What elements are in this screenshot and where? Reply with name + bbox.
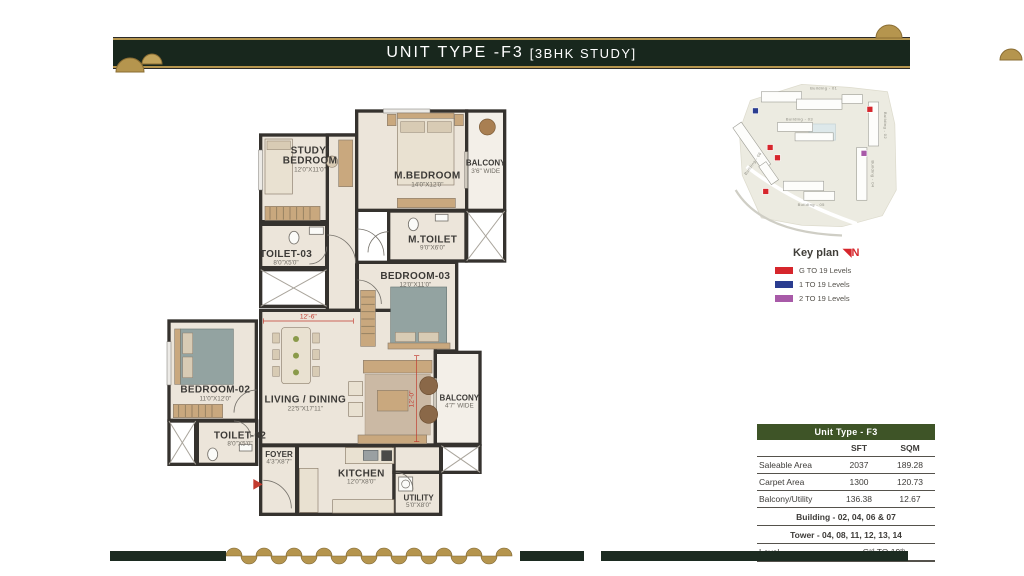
- unit-marker-red: [763, 189, 769, 195]
- page-title: UNIT TYPE -F3: [386, 44, 523, 62]
- room-label-bedroom-03: BEDROOM-03: [380, 271, 450, 282]
- wc: [208, 448, 218, 461]
- armchair: [420, 377, 438, 395]
- armchair: [420, 405, 438, 423]
- building-label: Building - 03: [786, 116, 813, 121]
- chair: [313, 350, 320, 360]
- side-table: [387, 114, 396, 125]
- row-label: Carpet Area: [757, 477, 833, 487]
- study-desk: [339, 140, 353, 187]
- floor-plan: 12'-6" 12'-0" STUDY/ BEDROOM 12'0"X11'0"…: [150, 95, 530, 535]
- plate: [293, 369, 299, 375]
- coffee-table: [377, 390, 408, 411]
- kitchen-counter-low: [333, 500, 394, 513]
- footer-gold-waves: [226, 545, 518, 567]
- legend-swatch-purple: [775, 295, 793, 302]
- room-dims-foyer: 4'3"X8'7": [266, 459, 291, 466]
- row-sft: 136.38: [833, 494, 885, 504]
- room-dims-mtoilet: 9'0"X6'0": [420, 245, 445, 252]
- north-arrow-icon: ◥N: [843, 246, 859, 259]
- unit-marker-red: [867, 106, 873, 112]
- room-dims-kitchen: 12'0"X8'0": [347, 479, 376, 486]
- chair: [313, 366, 320, 376]
- table-row: Carpet Area 1300 120.73: [757, 474, 935, 491]
- pillow: [419, 332, 439, 341]
- pillow: [395, 332, 415, 341]
- legend-label: 1 TO 19 Levels: [799, 280, 850, 289]
- unit-marker-red: [775, 155, 781, 161]
- row-sqm: 120.73: [885, 477, 935, 487]
- door-arc: [368, 232, 389, 253]
- col-header-sqm: SQM: [885, 443, 935, 453]
- legend-item: 2 TO 19 Levels: [775, 294, 851, 303]
- washing-machine: [399, 477, 413, 491]
- legend-swatch-red: [775, 267, 793, 274]
- room-label-foyer: FOYER: [265, 450, 293, 459]
- room-label-mtoilet: M.TOILET: [408, 234, 457, 245]
- row-sqm: 12.67: [885, 494, 935, 504]
- pillow: [401, 122, 425, 133]
- legend-label: 2 TO 19 Levels: [799, 294, 850, 303]
- room-label-toilet-02: TOILET-02: [214, 430, 266, 441]
- room-dims-living: 22'5"X17'11": [288, 405, 323, 412]
- unit-marker-blue: [753, 108, 759, 114]
- footer-bar-right: [601, 551, 908, 561]
- accent-chair: [349, 382, 363, 396]
- table-header-row: SFT SQM: [757, 440, 935, 457]
- table-row: Balcony/Utility 136.38 12.67: [757, 491, 935, 508]
- title-banner: UNIT TYPE -F3 [3BHK STUDY]: [113, 38, 910, 68]
- washbasin: [309, 227, 323, 234]
- unit-table: Unit Type - F3 SFT SQM Saleable Area 203…: [757, 424, 935, 562]
- legend-swatch-blue: [775, 281, 793, 288]
- sofa: [363, 360, 432, 373]
- wardrobe: [361, 290, 376, 346]
- window: [383, 109, 430, 113]
- accent-chair: [349, 402, 363, 416]
- wardrobe: [173, 404, 222, 417]
- dimension-label-v: 12'-0": [408, 390, 415, 408]
- pillow: [267, 141, 290, 150]
- dimension-label-h: 12'-6": [300, 313, 318, 320]
- room-dims-bedroom-02: 11'0"X12'0": [199, 395, 231, 402]
- building-label: Building - 02: [883, 112, 888, 139]
- row-sft: 2037: [833, 460, 885, 470]
- room-dims-mbedroom: 14'0"X12'0": [411, 181, 443, 188]
- dresser: [397, 198, 455, 207]
- legend-item: G TO 19 Levels: [775, 266, 851, 275]
- window: [259, 150, 263, 190]
- chair: [273, 333, 280, 343]
- room-label-toilet-03: TOILET-03: [260, 249, 312, 260]
- col-header-sft: SFT: [833, 443, 885, 453]
- window: [167, 342, 171, 385]
- building-label: Building - 01: [810, 86, 837, 91]
- row-sqm: 189.28: [885, 460, 935, 470]
- room-dims-balcony-top: 3'6" WIDE: [471, 168, 500, 175]
- room-dims-bedroom-03: 12'0"X11'0": [399, 281, 431, 288]
- room-dims-toilet-03: 8'0"X5'0": [273, 259, 298, 266]
- room-label-mbedroom: M.BEDROOM: [394, 170, 460, 181]
- gold-scallop-right: [872, 24, 916, 40]
- room-label-balcony-top: BALCONY: [466, 159, 506, 168]
- pillow: [183, 357, 193, 378]
- gold-scallop-edge: [998, 46, 1024, 62]
- pillow: [427, 122, 451, 133]
- fridge-cabinet: [299, 468, 318, 512]
- building-label: Building - 04: [870, 160, 875, 187]
- building-label: Building - 05: [798, 202, 825, 207]
- page-subtitle: [3BHK STUDY]: [530, 46, 637, 61]
- chair: [273, 350, 280, 360]
- plate: [293, 336, 299, 342]
- room-dims-study: 12'0"X11'0": [294, 167, 326, 174]
- tower-row: Tower - 04, 08, 11, 12, 13, 14: [757, 526, 935, 544]
- footer-bar-mid: [520, 551, 584, 561]
- room-label-living: LIVING / DINING: [264, 394, 346, 405]
- row-label: Balcony/Utility: [757, 494, 833, 504]
- row-sft: 1300: [833, 477, 885, 487]
- brochure-page: UNIT TYPE -F3 [3BHK STUDY]: [0, 0, 1024, 576]
- room-label-study-1: STUDY/: [291, 146, 330, 157]
- footer-bar-left: [110, 551, 226, 561]
- table-row: Saleable Area 2037 189.28: [757, 457, 935, 474]
- room-label-bedroom-02: BEDROOM-02: [180, 384, 250, 395]
- room-label-study-2: BEDROOM: [283, 156, 338, 167]
- key-plan-legend: G TO 19 Levels 1 TO 19 Levels 2 TO 19 Le…: [775, 266, 851, 308]
- wc: [408, 218, 418, 231]
- plate: [293, 353, 299, 359]
- room-label-utility: UTILITY: [404, 493, 435, 502]
- side-table: [455, 114, 464, 125]
- chair: [273, 366, 280, 376]
- wc: [289, 231, 299, 244]
- kitchen-passage: [394, 446, 441, 473]
- pillow: [183, 333, 193, 354]
- unit-marker-red: [767, 145, 773, 151]
- room-dims-balcony-right: 4'7" WIDE: [445, 403, 474, 410]
- building-row: Building - 02, 04, 06 & 07: [757, 508, 935, 526]
- room-dims-toilet-02: 8'0"X5'0": [227, 441, 252, 448]
- room-label-kitchen: KITCHEN: [338, 468, 385, 479]
- washbasin: [435, 214, 448, 221]
- legend-item: 1 TO 19 Levels: [775, 280, 851, 289]
- key-plan-caption: Key plan: [793, 247, 839, 259]
- sink: [363, 450, 378, 460]
- bed-headboard: [175, 329, 181, 384]
- unit-marker-purple: [861, 150, 867, 156]
- key-plan-map: Building - 01 Building - 02 Building - 0…: [700, 80, 940, 245]
- gold-scallop-left: [112, 50, 176, 74]
- row-label: Saleable Area: [757, 460, 833, 470]
- bed-headboard: [388, 343, 450, 349]
- wardrobe: [265, 206, 320, 220]
- unit-table-title: Unit Type - F3: [757, 424, 935, 440]
- balcony-slider: [465, 152, 468, 189]
- chair: [313, 333, 320, 343]
- room-label-balcony-right: BALCONY: [440, 393, 480, 402]
- hob: [381, 450, 392, 461]
- room-dims-utility: 5'0"X8'0": [406, 502, 431, 509]
- plant: [479, 119, 495, 135]
- legend-label: G TO 19 Levels: [799, 266, 851, 275]
